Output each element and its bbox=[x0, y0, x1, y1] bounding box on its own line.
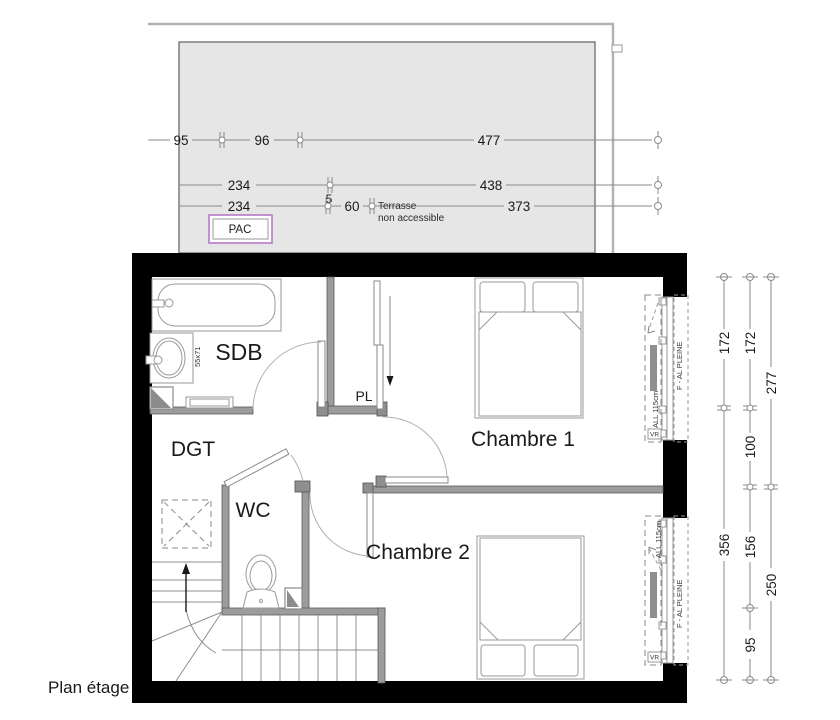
pac-unit: PAC bbox=[209, 215, 272, 243]
wc-door-swing bbox=[291, 455, 303, 481]
bedroom2-door-swing bbox=[310, 493, 370, 556]
dim-label: 95 bbox=[743, 637, 758, 652]
dim-label: 60 bbox=[344, 199, 359, 214]
wc-left-wall bbox=[222, 485, 229, 612]
pillow bbox=[533, 282, 578, 312]
wall-bottom bbox=[132, 681, 685, 703]
stair-right-wall bbox=[378, 608, 385, 683]
bathroom-door-swing bbox=[253, 342, 321, 409]
stair-winders bbox=[152, 612, 222, 681]
dim-label: 477 bbox=[478, 133, 501, 148]
bedroom-dividing-wall bbox=[372, 486, 663, 493]
page-title: Plan étage bbox=[48, 678, 129, 697]
closet-left-wall bbox=[327, 277, 334, 412]
wc-door-leaf bbox=[224, 449, 289, 487]
floor-plan-page: 95 96 477 234 438 5 234 60 373 Terrasse … bbox=[0, 0, 840, 720]
dim-column-2: 172 100 156 95 bbox=[742, 274, 758, 684]
window-sill-label: ALL 115cm bbox=[651, 391, 660, 428]
dim-column-1: 172 356 bbox=[716, 274, 732, 684]
dim-label: 172 bbox=[743, 332, 758, 355]
wall-left bbox=[132, 253, 152, 703]
dim-label: 356 bbox=[717, 534, 732, 557]
dim-label: 250 bbox=[764, 574, 779, 597]
window-sill-label: ALL 115cm bbox=[654, 521, 663, 558]
bed-chambre2 bbox=[477, 536, 584, 679]
dim-label: 234 bbox=[228, 199, 251, 214]
wc-right-wall bbox=[302, 490, 309, 612]
bedroom1-door-swing bbox=[383, 417, 447, 478]
door-hinge bbox=[363, 483, 373, 493]
terrace-note-line2: non accessible bbox=[378, 213, 445, 224]
room-label-chambre1: Chambre 1 bbox=[471, 428, 575, 451]
terrace-note-line1: Terrasse bbox=[378, 201, 417, 212]
toilet-tank bbox=[243, 589, 279, 608]
window-type-label: F - AL PLEINE bbox=[675, 342, 684, 391]
window-sash bbox=[650, 345, 657, 391]
dim-label: 172 bbox=[717, 332, 732, 355]
dim-label: 234 bbox=[228, 178, 251, 193]
bathtub-faucet bbox=[165, 299, 173, 307]
dim-label: 277 bbox=[764, 372, 779, 395]
wall-right-top bbox=[663, 253, 687, 297]
room-label-wc: WC bbox=[236, 499, 271, 522]
mattress bbox=[480, 538, 581, 640]
room-label-sdb: SDB bbox=[215, 339, 262, 365]
shutter-label: VR bbox=[650, 432, 659, 439]
window-chambre1: VR ALL 115cm F - AL PLEINE bbox=[645, 295, 688, 442]
wall-right-middle bbox=[663, 440, 687, 518]
closet-sliding-door bbox=[374, 281, 380, 345]
bathroom-door-leaf bbox=[318, 341, 325, 407]
wall-top bbox=[132, 253, 685, 277]
pillow bbox=[534, 645, 578, 676]
closet bbox=[374, 281, 394, 409]
stair-top-wall bbox=[222, 608, 385, 615]
room-label-pl: PL bbox=[355, 388, 372, 404]
room-label-dgt: DGT bbox=[171, 438, 216, 461]
dim-label: 96 bbox=[254, 133, 269, 148]
doors bbox=[224, 341, 448, 557]
floor-plan-drawing: 95 96 477 234 438 5 234 60 373 Terrasse … bbox=[0, 0, 840, 720]
sink-size-label: 55x71 bbox=[193, 347, 202, 367]
skylight bbox=[162, 500, 211, 548]
pillow bbox=[480, 282, 525, 312]
window-type-label: F - AL PLEINE bbox=[675, 580, 684, 629]
dim-column-3: 277 250 bbox=[763, 274, 779, 684]
dim-label: 100 bbox=[743, 436, 758, 459]
door-post bbox=[295, 481, 310, 492]
bedroom1-door-leaf bbox=[385, 477, 448, 483]
closet-sliding-door bbox=[377, 345, 383, 409]
stair-treads-bottom bbox=[222, 615, 378, 681]
dim-label: 373 bbox=[508, 199, 531, 214]
room-label-chambre2: Chambre 2 bbox=[366, 541, 470, 564]
shutter-label: VR bbox=[650, 655, 659, 662]
pillow bbox=[481, 645, 525, 676]
mattress bbox=[479, 312, 581, 416]
window-chambre2: VR ALL 115cm F - AL PLEINE bbox=[645, 516, 688, 665]
terrace-area: 95 96 477 234 438 5 234 60 373 Terrasse … bbox=[148, 24, 662, 253]
wc-fixtures bbox=[243, 555, 302, 609]
wall-right-bottom bbox=[663, 663, 687, 703]
dim-label: 156 bbox=[743, 536, 758, 559]
dim-label: 95 bbox=[173, 133, 188, 148]
terrace-tab bbox=[612, 45, 622, 52]
bed-chambre1 bbox=[475, 278, 583, 418]
window-sash bbox=[650, 572, 657, 618]
pac-label: PAC bbox=[229, 224, 252, 236]
dim-label: 438 bbox=[480, 178, 503, 193]
